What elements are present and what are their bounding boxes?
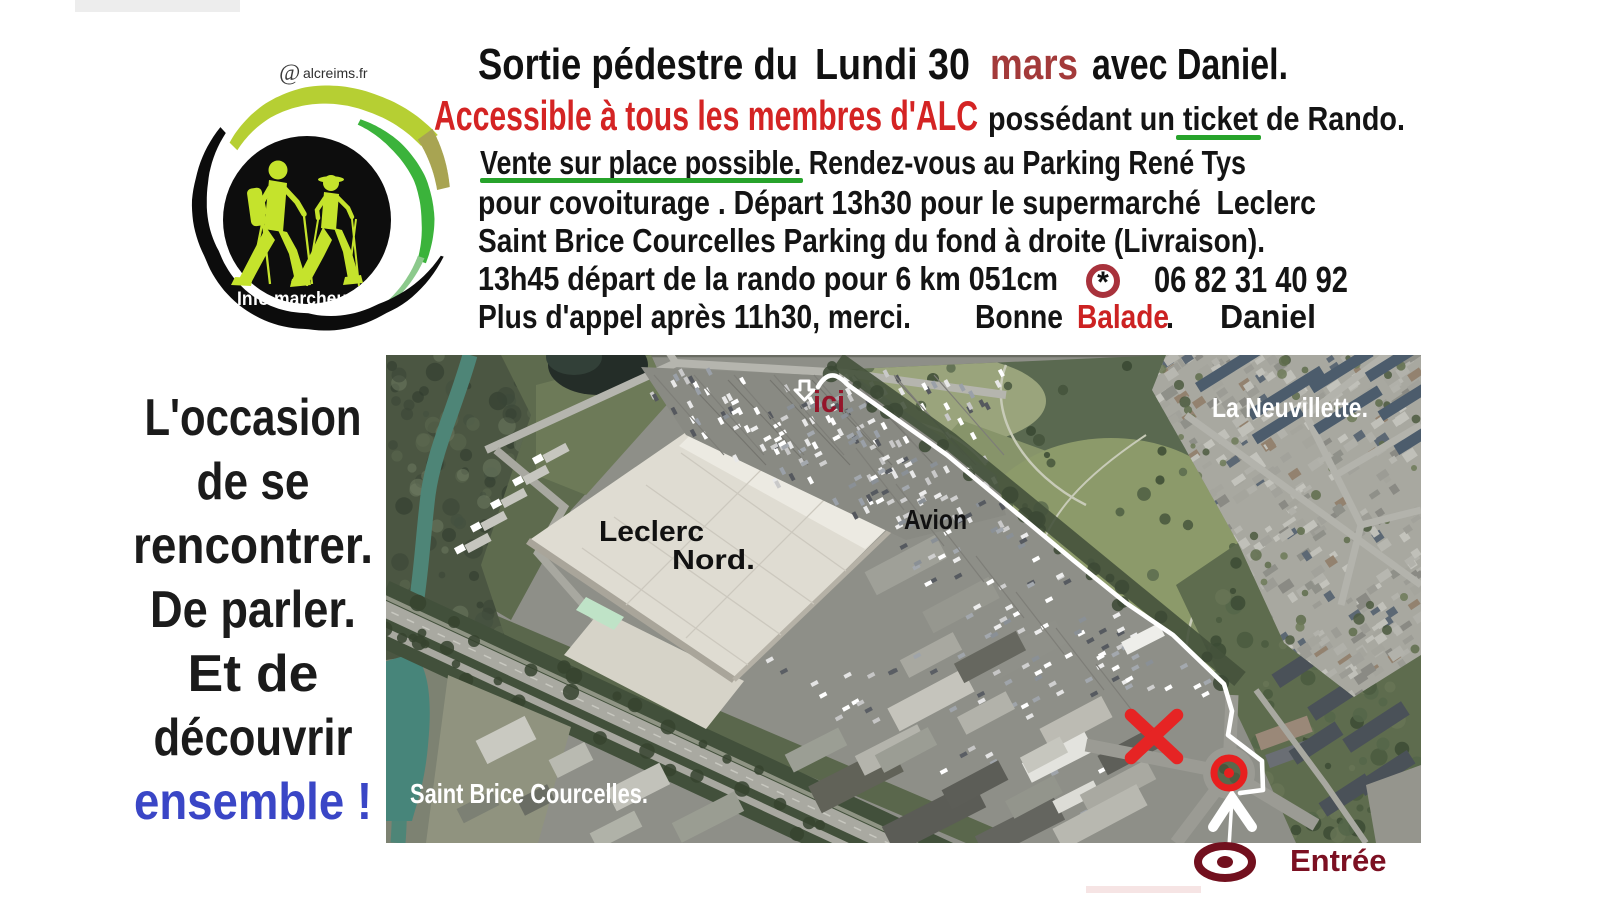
svg-text:La Neuvillette.: La Neuvillette.: [1212, 392, 1368, 423]
svg-text:Info marcheur: Info marcheur: [237, 289, 355, 310]
svg-text:ici: ici: [813, 384, 845, 419]
svg-text:@: @: [279, 60, 300, 85]
svg-text:Avion: Avion: [904, 504, 967, 535]
svg-text:Saint Brice Courcelles.: Saint Brice Courcelles.: [410, 778, 648, 809]
svg-text:Nord.: Nord.: [672, 544, 755, 575]
svg-text:alcreims.fr: alcreims.fr: [303, 65, 368, 81]
svg-text:*: *: [1097, 266, 1109, 299]
